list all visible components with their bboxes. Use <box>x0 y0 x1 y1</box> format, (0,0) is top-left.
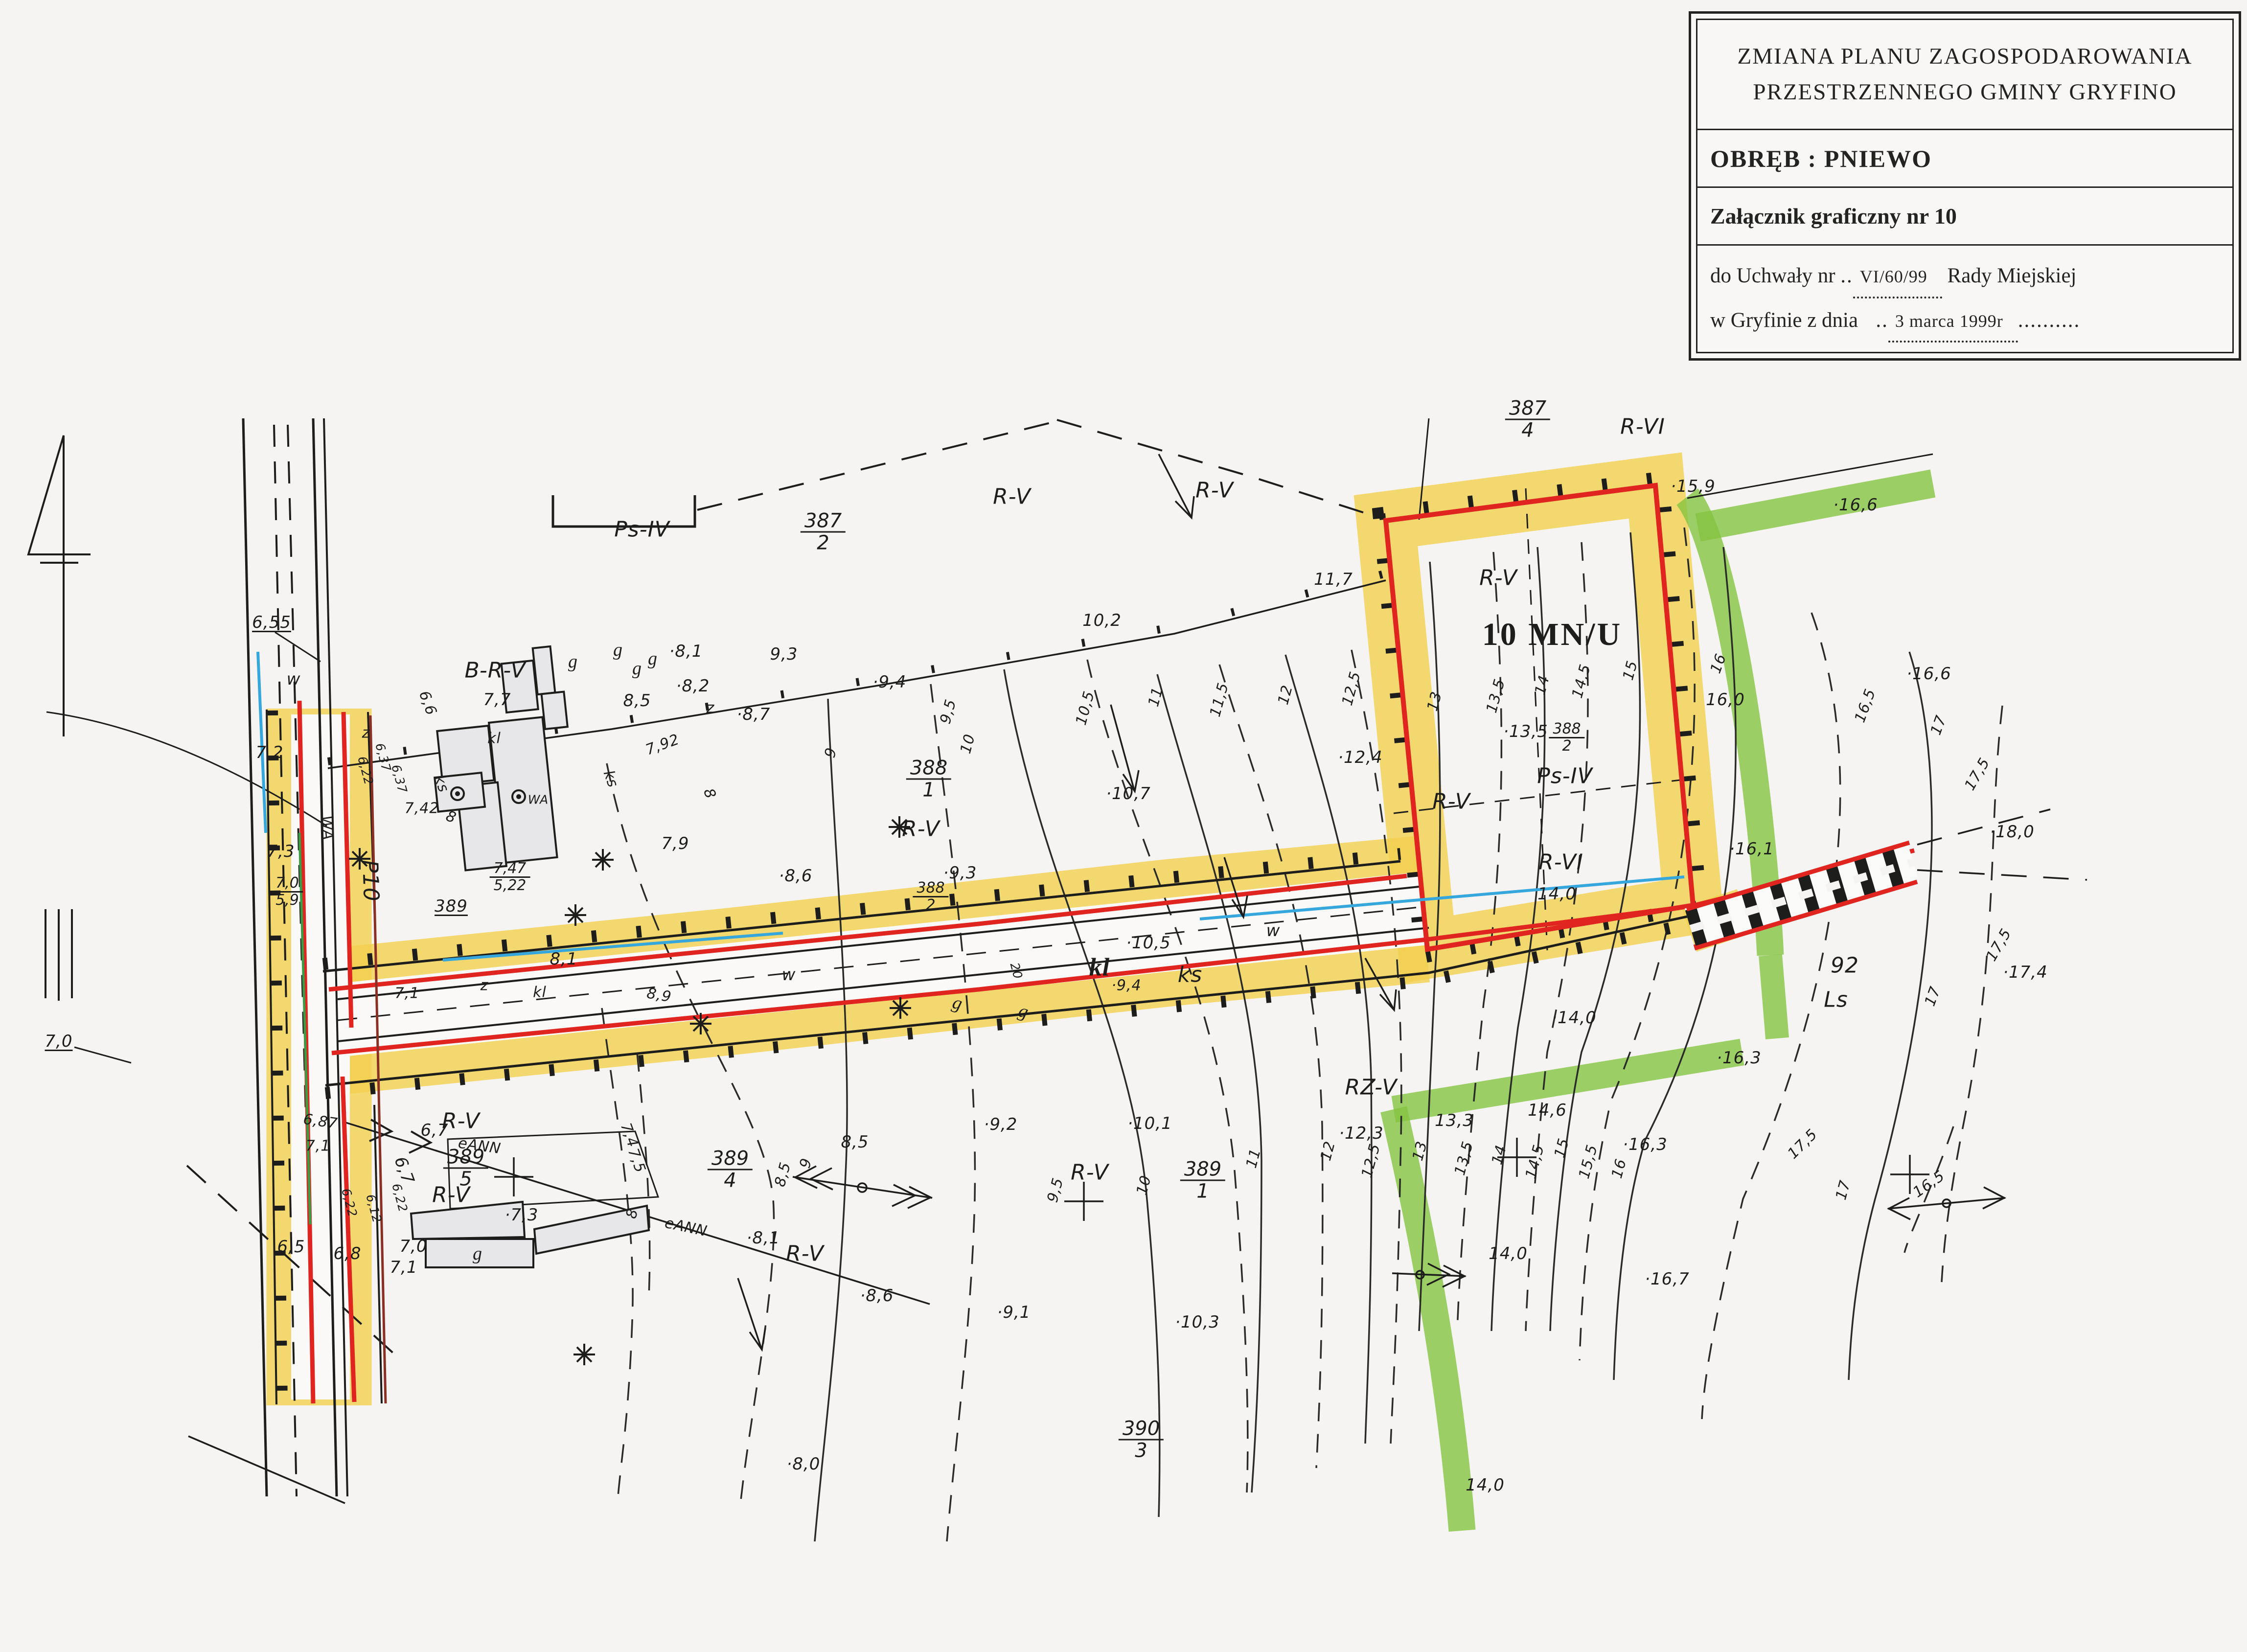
map-label: w <box>287 669 301 689</box>
map-label: 7,0 <box>399 1237 427 1256</box>
map-label: 6,5 <box>277 1237 305 1257</box>
map-label: 17 <box>1927 713 1950 737</box>
parcel-number-numerator: 388 <box>1549 721 1584 738</box>
dots: .......... <box>2018 309 2081 332</box>
parcel-number-numerator: 7,0 <box>272 875 303 893</box>
parcel-number-denominator: 1 <box>906 780 951 801</box>
map-label: 12,5 <box>1339 669 1364 707</box>
map-label: 6,7 <box>390 1154 418 1187</box>
map-label: 9 <box>821 746 840 759</box>
map-label: R-V <box>1432 789 1470 814</box>
parcel-number: 3894 <box>708 1148 753 1191</box>
map-label: 6,55 <box>252 613 291 632</box>
map-label: R-V <box>442 1109 480 1134</box>
map-label: 15 <box>1551 1136 1573 1160</box>
map-label: ks <box>431 773 453 795</box>
map-label: 7,2 <box>255 743 283 762</box>
parcel-number-numerator: 387 <box>801 511 846 533</box>
map-label: z <box>362 725 370 742</box>
map-label: 14,5 <box>1569 662 1594 700</box>
map-label: R-V <box>786 1241 824 1266</box>
map-label: ·7,3 <box>505 1205 539 1225</box>
map-label: 12 <box>1275 683 1296 707</box>
map-label: WA <box>317 815 336 841</box>
map-label: 9,3 <box>770 644 798 664</box>
map-label: 13,5 <box>1451 1139 1477 1177</box>
parcel-number-numerator: 7,47 <box>490 861 530 878</box>
title-block: ZMIANA PLANU ZAGOSPODAROWANIA PRZESTRZEN… <box>1689 11 2241 361</box>
parcel-number-numerator: 389 <box>708 1148 753 1170</box>
map-label: 7,7 <box>483 690 511 710</box>
map-label: 10,2 <box>1082 611 1122 630</box>
parcel-number-denominator: 2 <box>913 897 948 913</box>
map-label: 7,9 <box>661 834 689 853</box>
map-label: 16,5 <box>1851 687 1879 725</box>
map-label: 11 <box>1145 685 1167 709</box>
map-label: ·16,6 <box>1833 495 1878 515</box>
map-label: R-VI <box>1620 414 1665 439</box>
map-label: WA <box>528 793 549 807</box>
map-label: 7,4 <box>617 1121 642 1150</box>
map-label: 17,5 <box>1961 755 1994 794</box>
map-label: R-V <box>1071 1160 1109 1185</box>
date-line: w Gryfinie z dnia ..3 marca 1999r.......… <box>1710 298 2220 343</box>
map-label: ·18,0 <box>1990 822 2035 842</box>
map-label: R-V <box>1195 478 1234 503</box>
map-label: 10 <box>1133 1173 1155 1197</box>
map-label: 6,6 <box>415 688 440 718</box>
parcel-number-denominator: 2 <box>1549 738 1584 754</box>
map-label: 7,92 <box>643 731 682 758</box>
uchwala-line: do Uchwały nr ..VI/60/99 Rady Miejskiej <box>1710 254 2220 298</box>
map-label: R-V <box>1479 566 1517 591</box>
map-label: 7,1 <box>390 1258 417 1277</box>
map-label: 6,22 <box>355 755 376 786</box>
uchwala-number: VI/60/99 <box>1853 258 1942 298</box>
map-label: kl <box>1089 953 1110 982</box>
map-label: R-V <box>993 484 1031 509</box>
parcel-number-denominator: 4 <box>708 1170 753 1191</box>
map-label: 6,22 <box>389 1182 410 1214</box>
map-label: 7,42 <box>405 800 439 817</box>
map-label: 14 <box>1532 673 1553 697</box>
map-label: 8 <box>700 786 719 802</box>
map-label: 14,5 <box>1522 1143 1548 1180</box>
map-label: 11,5 <box>1207 681 1232 718</box>
map-label: 8,9 <box>645 985 673 1006</box>
map-label: ·16,3 <box>1623 1135 1668 1154</box>
map-label: ·16,7 <box>1645 1269 1690 1289</box>
map-label: 17 <box>1922 984 1945 1009</box>
plan-title-line1: ZMIANA PLANU ZAGOSPODAROWANIA <box>1710 39 2220 74</box>
map-label: 14 <box>1489 1143 1510 1167</box>
map-label: ·10,7 <box>1106 784 1151 803</box>
map-label: 7,0 <box>45 1032 72 1051</box>
parcel-number: 7,475,22 <box>490 861 530 893</box>
map-label: ·16,3 <box>1717 1048 1762 1068</box>
map-label: kl <box>533 984 547 1001</box>
parcel-number-numerator: 387 <box>1505 398 1550 420</box>
map-label: 10,5 <box>1073 689 1098 727</box>
map-label: 16 <box>1707 651 1730 676</box>
parcel-number-denominator: 4 <box>1505 420 1550 441</box>
map-label: 13,3 <box>1435 1111 1474 1130</box>
map-label: g <box>648 648 658 669</box>
map-label: ·8,0 <box>787 1454 821 1474</box>
map-label: Ps-IV <box>1537 764 1592 789</box>
map-label: 13 <box>1424 689 1445 713</box>
map-label: w <box>782 965 796 985</box>
map-label: 14,0 <box>1537 884 1577 904</box>
map-label: ·8,1 <box>669 642 703 661</box>
map-label: ·10,5 <box>1126 933 1171 953</box>
zalacznik-label: Załącznik graficzny nr 10 <box>1710 203 2220 229</box>
map-label: 7,5 <box>624 1146 649 1175</box>
map-label: eANN <box>663 1215 709 1240</box>
map-label: 8 <box>622 1207 642 1220</box>
map-label: ·9,1 <box>997 1303 1031 1322</box>
map-label: g <box>613 639 623 661</box>
map-label: B-R-V <box>464 658 526 683</box>
uchwala-date: 3 marca 1999r <box>1888 303 2018 343</box>
parcel-number-denominator: 2 <box>801 533 846 553</box>
dots: .. <box>1863 309 1888 332</box>
map-label: 17,5 <box>1983 926 2015 964</box>
parcel-number-numerator: 390 <box>1119 1419 1164 1441</box>
map-label: Ls <box>1824 987 1848 1012</box>
map-label: 10 MN/U <box>1482 616 1622 653</box>
map-label: ·10,1 <box>1127 1114 1172 1133</box>
parcel-number-denominator: 5 <box>443 1169 488 1190</box>
map-label: ·14,0 <box>1552 1008 1597 1028</box>
map-label: 16 <box>1608 1157 1630 1180</box>
parcel-number: 3895 <box>443 1147 488 1190</box>
uchwala-suffix: Rady Miejskiej <box>1948 264 2077 287</box>
parcel-number-numerator: 389 <box>443 1147 488 1169</box>
map-label: g <box>568 651 578 672</box>
map-label: ·16,6 <box>1906 664 1951 684</box>
map-label: g <box>632 658 642 679</box>
parcel-number-denominator: 1 <box>1180 1181 1225 1202</box>
parcel-number: 3872 <box>801 511 846 553</box>
map-label: 13 <box>1409 1139 1431 1163</box>
map-label: ·9,2 <box>984 1115 1018 1134</box>
parcel-number: 3903 <box>1119 1419 1164 1461</box>
map-label: 12,5 <box>1358 1142 1384 1179</box>
parcel-number: 3882 <box>913 880 948 913</box>
parcel-number-denominator: 5,9 <box>272 893 303 908</box>
map-label: z <box>481 977 489 994</box>
map-label: ·15,9 <box>1671 477 1716 496</box>
map-label: R-V <box>902 817 940 842</box>
map-label: 6,8 <box>333 1244 361 1263</box>
map-label: ·9,4 <box>873 672 907 692</box>
parcel-number: 3891 <box>1180 1159 1225 1202</box>
map-label: ·16,1 <box>1729 839 1774 859</box>
parcel-number: 3874 <box>1505 398 1550 441</box>
map-label: 9 <box>796 1156 815 1170</box>
obreb-label: OBRĘB : PNIEWO <box>1710 144 2220 173</box>
map-label: kl <box>487 730 501 747</box>
map-label: 9,5 <box>1044 1176 1067 1204</box>
map-label: 8,5 <box>841 1132 869 1152</box>
map-label: ·8,7 <box>737 705 771 724</box>
map-label: R-VI <box>1538 850 1583 875</box>
map-label: ·12,4 <box>1338 748 1383 767</box>
map-label: 92 <box>1831 953 1859 978</box>
map-label: 8,5 <box>772 1160 795 1189</box>
map-label: ·8,6 <box>779 866 813 886</box>
date-prefix: w Gryfinie z dnia <box>1710 309 1858 332</box>
map-label: 13,5 <box>1483 677 1509 714</box>
map-label: 8 <box>444 807 459 827</box>
map-label: 11 <box>1243 1147 1264 1170</box>
map-label: Ps-IV <box>614 517 669 542</box>
map-label: 8,1 <box>550 949 577 969</box>
parcel-number-denominator: 5,22 <box>490 878 530 894</box>
map-label: 12 <box>1317 1139 1339 1163</box>
map-label: z <box>707 700 715 717</box>
map-label: 7,1 <box>395 985 420 1002</box>
map-label: 15,5 <box>1576 1143 1601 1180</box>
map-label: 15 <box>1620 659 1641 682</box>
map-label: 14,6 <box>1528 1101 1567 1120</box>
map-label: 17,5 <box>1785 1126 1821 1163</box>
plan-title-line2: PRZESTRZENNEGO GMINY GRYFINO <box>1710 74 2220 110</box>
map-label: w <box>1266 921 1281 941</box>
parcel-number: 7,05,9 <box>272 875 303 908</box>
map-label: 9,5 <box>937 697 960 726</box>
map-label: ·17,4 <box>2003 963 2048 982</box>
map-label: ·9,3 <box>943 863 977 883</box>
dots: .. <box>1840 264 1853 287</box>
map-label: ·8,2 <box>676 676 710 696</box>
parcel-number: 3881 <box>906 758 951 801</box>
map-label: 20 <box>1008 961 1026 981</box>
map-label: 8,5 <box>623 691 651 711</box>
map-label: 11,7 <box>1314 570 1353 589</box>
map-label: 7,3 <box>267 842 295 861</box>
map-label: RZ-V <box>1345 1075 1398 1100</box>
map-label: 7,1 <box>306 1138 331 1155</box>
map-label: 17 <box>1833 1178 1854 1202</box>
map-label: ·9,4 <box>1111 977 1141 994</box>
map-label: ks <box>1178 963 1202 987</box>
uchwala-prefix: do Uchwały nr <box>1710 264 1835 287</box>
map-label: g <box>1016 1000 1032 1023</box>
map-label: ·10,3 <box>1175 1312 1220 1332</box>
map-label: 10 <box>957 732 979 756</box>
map-label: g <box>473 1243 482 1264</box>
map-label: ·13,5 <box>1503 722 1548 741</box>
map-label: g <box>950 991 965 1015</box>
parcel-number-numerator: 388 <box>913 880 948 897</box>
parcel-number: 3882 <box>1549 721 1584 754</box>
map-label: 14,0 <box>1489 1244 1528 1263</box>
scanned-zoning-map: 6,55w7,27,37,06,877,16,56,87,07,16,76,7R… <box>0 0 2247 1652</box>
parcel-number-numerator: 389 <box>1180 1159 1225 1181</box>
map-label: 16,5 <box>1910 1167 1948 1201</box>
parcel-number-numerator: 388 <box>906 758 951 780</box>
map-label: ks <box>600 768 622 790</box>
map-label: 6,12 <box>363 1193 384 1224</box>
parcel-number-denominator: 3 <box>1119 1441 1164 1461</box>
map-label: 6,37 <box>389 763 410 795</box>
map-label: 389 <box>435 896 468 916</box>
map-label: P10 <box>357 859 384 902</box>
map-label: 6,22 <box>339 1187 360 1218</box>
map-label: 6,87 <box>302 1111 339 1133</box>
map-label: 16,0 <box>1706 690 1745 710</box>
map-label: ·8,1 <box>747 1228 780 1248</box>
map-label: ·8,6 <box>860 1286 894 1306</box>
map-label: ·12,3 <box>1339 1124 1384 1143</box>
map-label: 14,0 <box>1466 1475 1505 1495</box>
